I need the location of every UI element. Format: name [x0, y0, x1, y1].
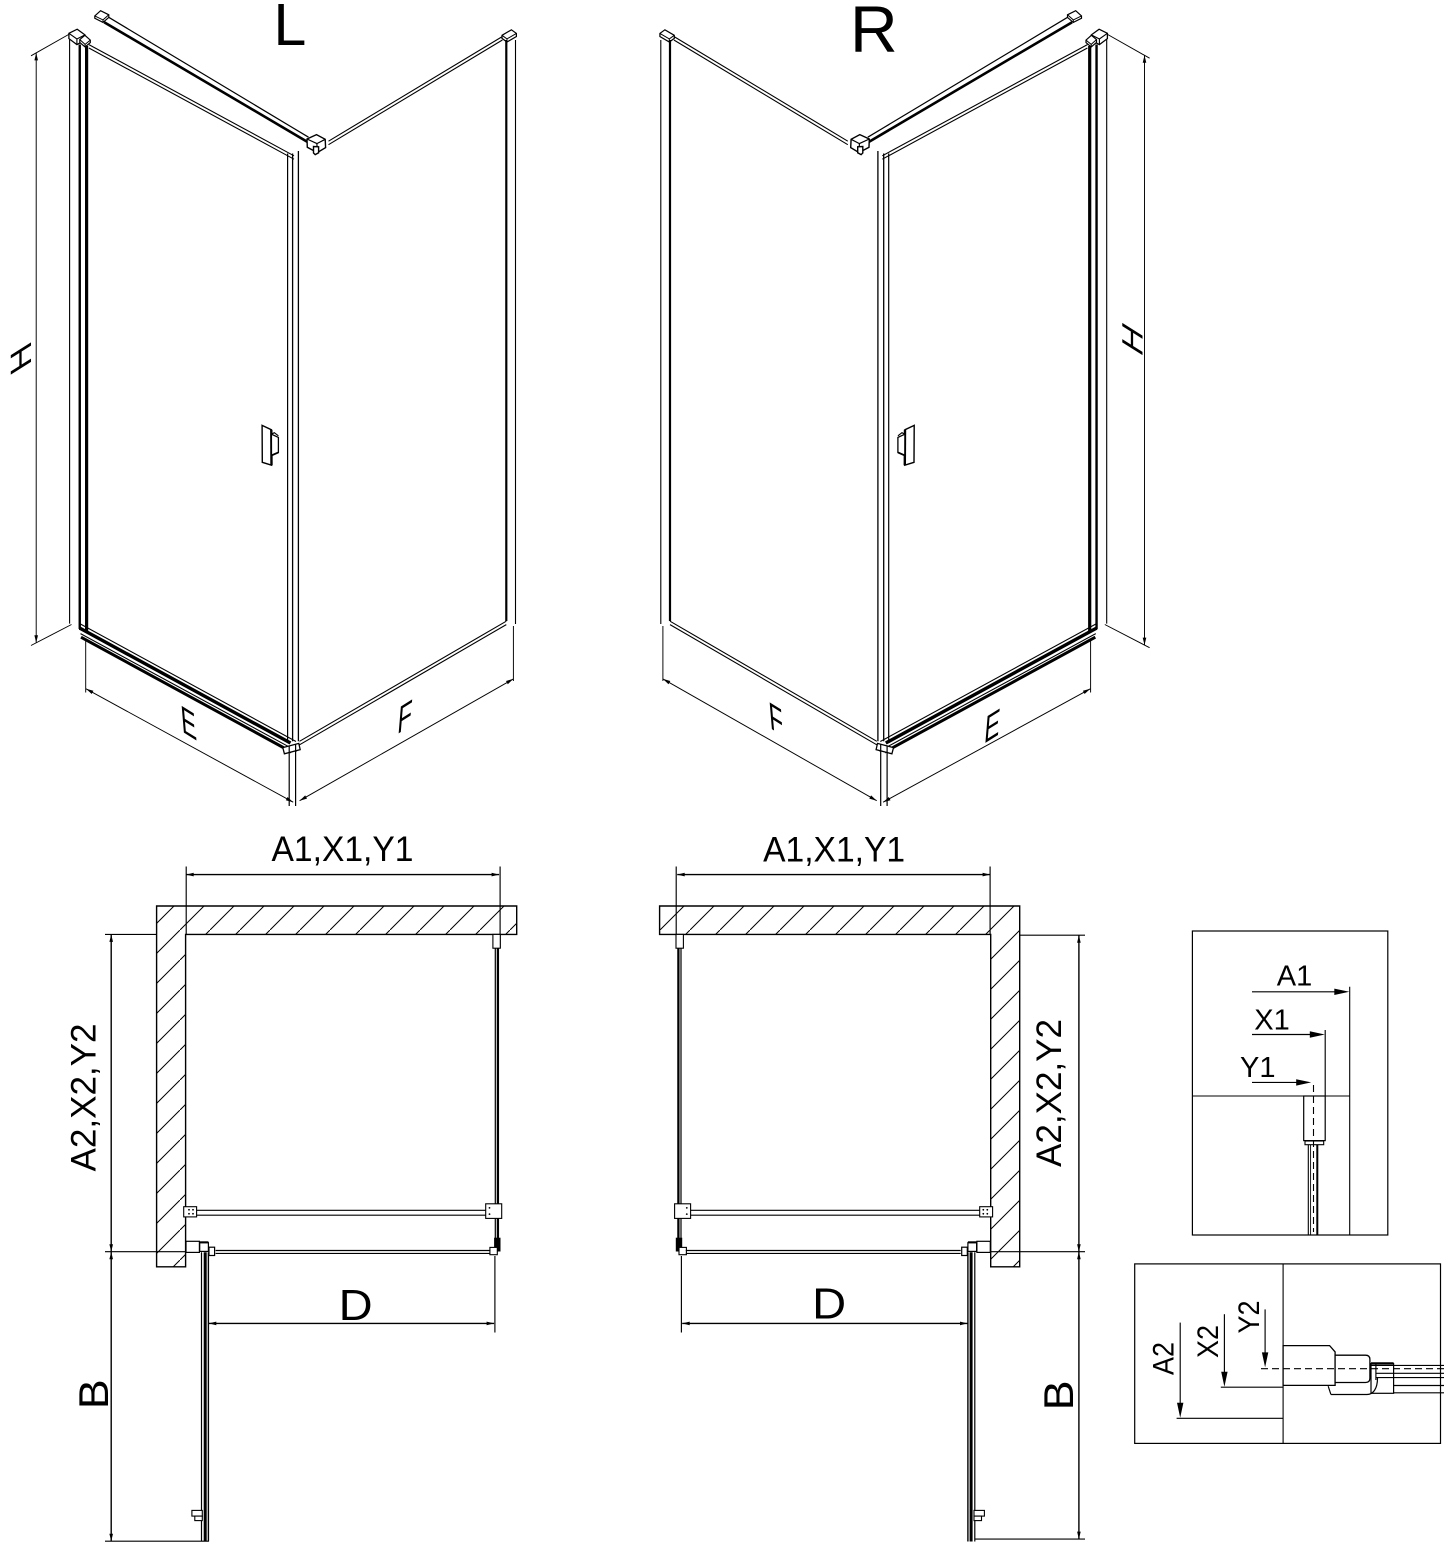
svg-text:A1,X1,Y1: A1,X1,Y1: [272, 829, 414, 869]
svg-text:D: D: [812, 1280, 846, 1329]
svg-text:X2: X2: [1192, 1325, 1225, 1358]
svg-text:Y1: Y1: [1240, 1052, 1275, 1084]
svg-text:L: L: [274, 0, 307, 58]
svg-text:B: B: [1035, 1380, 1082, 1410]
svg-text:R: R: [850, 0, 898, 66]
svg-text:A2: A2: [1148, 1342, 1181, 1375]
svg-text:Y2: Y2: [1233, 1301, 1266, 1334]
svg-text:B: B: [70, 1379, 117, 1409]
svg-text:X1: X1: [1254, 1004, 1289, 1036]
svg-text:D: D: [339, 1281, 373, 1330]
svg-text:A2,X2,Y2: A2,X2,Y2: [65, 1024, 104, 1172]
svg-text:A2,X2,Y2: A2,X2,Y2: [1030, 1019, 1069, 1167]
svg-text:A1,X1,Y1: A1,X1,Y1: [763, 830, 905, 870]
svg-text:A1: A1: [1277, 961, 1312, 993]
